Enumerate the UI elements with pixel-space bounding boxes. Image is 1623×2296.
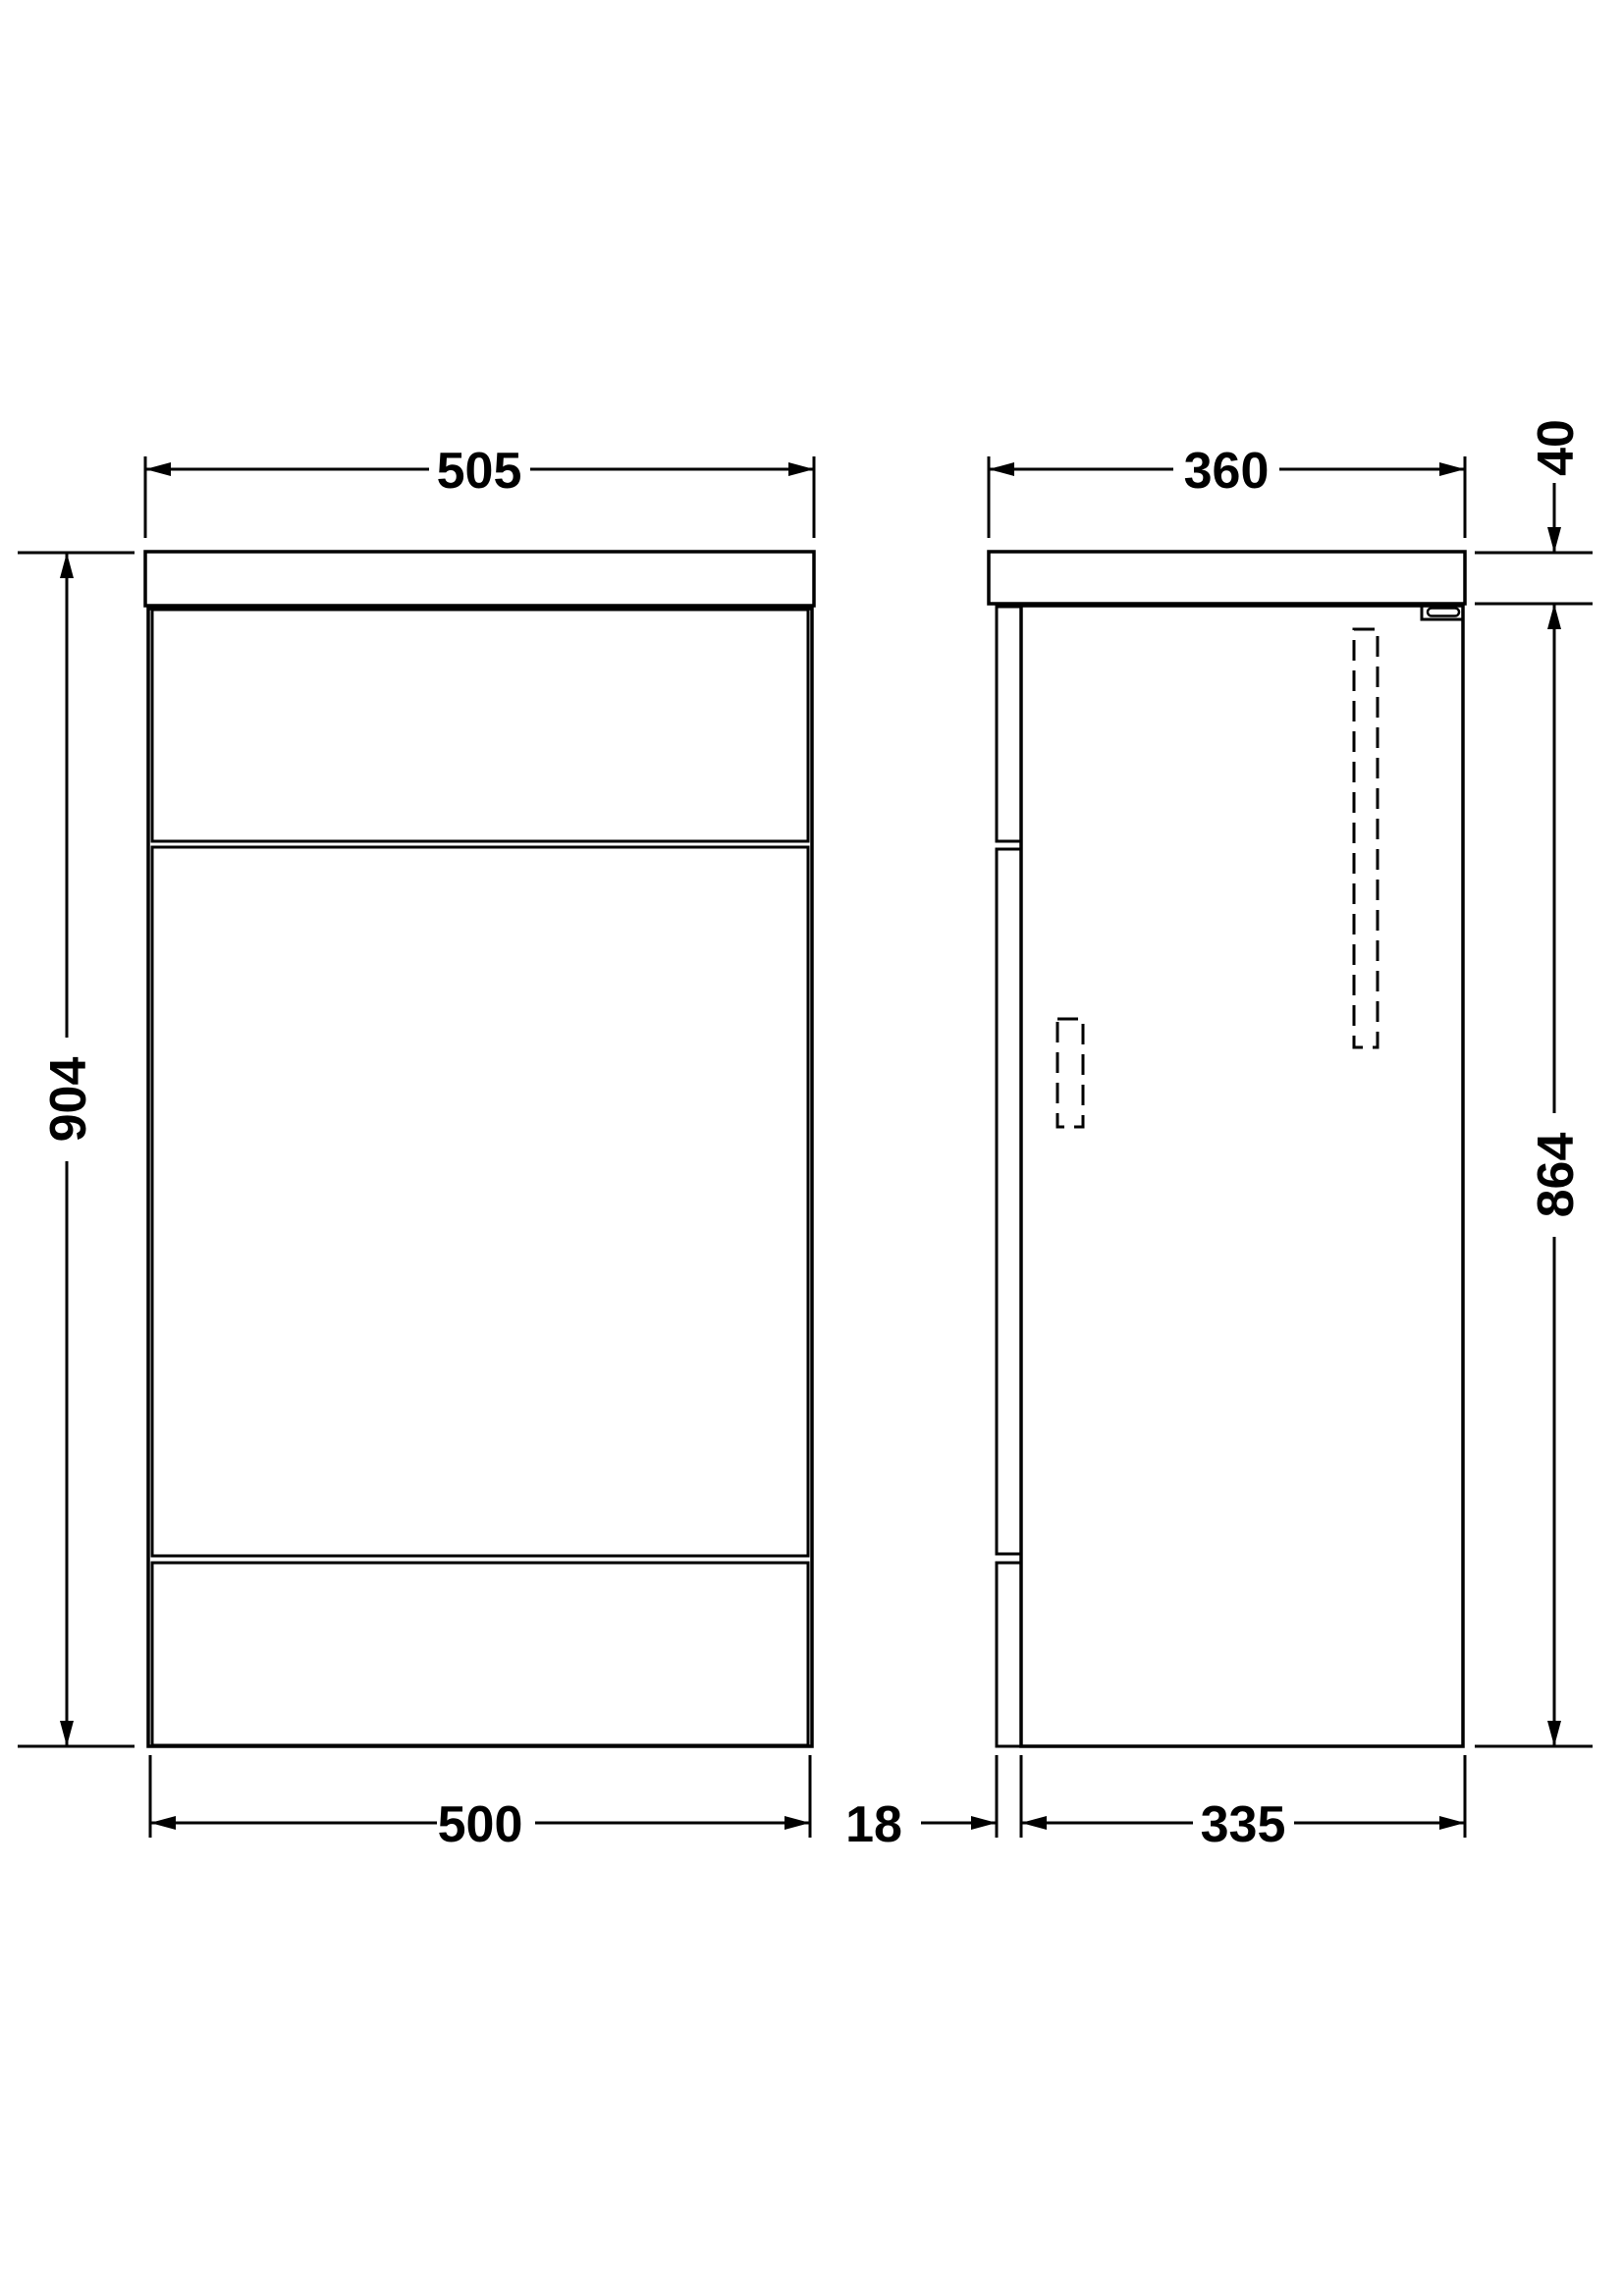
front-access-panel (152, 610, 808, 841)
drawing-canvas: 505 904 500 360 40 864 (0, 0, 1623, 2296)
dim-label-worktop-thickness: 40 (1528, 419, 1585, 476)
dim-label-worktop-width: 505 (437, 443, 522, 500)
dim-label-cabinet-height: 864 (1528, 1133, 1585, 1218)
dim-label-back-panel-thickness: 18 (845, 1796, 902, 1853)
dim-side-cabinet-height: 864 (1475, 604, 1593, 1746)
dim-front-worktop-width: 505 (145, 443, 814, 538)
dim-side-worktop-depth: 360 (989, 443, 1465, 538)
hidden-detail-back (1057, 1019, 1083, 1127)
dim-label-cabinet-width: 500 (438, 1796, 523, 1853)
side-view (989, 552, 1465, 1746)
side-back-panel-middle (997, 849, 1021, 1554)
handle-slot (1428, 609, 1459, 616)
front-plinth-panel (152, 1563, 808, 1745)
dim-label-overall-height: 904 (40, 1057, 97, 1143)
side-cabinet-outline (1021, 606, 1463, 1746)
dim-label-worktop-depth: 360 (1184, 443, 1270, 500)
hidden-detail-front (1354, 629, 1378, 1047)
front-view (145, 552, 814, 1746)
front-cabinet-outline (148, 609, 812, 1746)
side-back-panel-bottom (997, 1563, 1021, 1746)
dim-side-cabinet-depth: 335 (1021, 1755, 1465, 1853)
side-back-panel-top (997, 607, 1021, 841)
dim-worktop-thickness: 40 (1475, 419, 1593, 604)
dim-label-cabinet-depth: 335 (1201, 1796, 1286, 1853)
dimension-drawing: 505 904 500 360 40 864 (0, 0, 1623, 2296)
dim-front-overall-height: 904 (18, 553, 135, 1746)
side-worktop (989, 552, 1465, 604)
front-worktop (145, 552, 814, 606)
front-door-panel (152, 847, 808, 1556)
dim-back-panel-thickness: 18 (845, 1755, 1021, 1853)
dim-front-cabinet-width: 500 (150, 1755, 810, 1853)
